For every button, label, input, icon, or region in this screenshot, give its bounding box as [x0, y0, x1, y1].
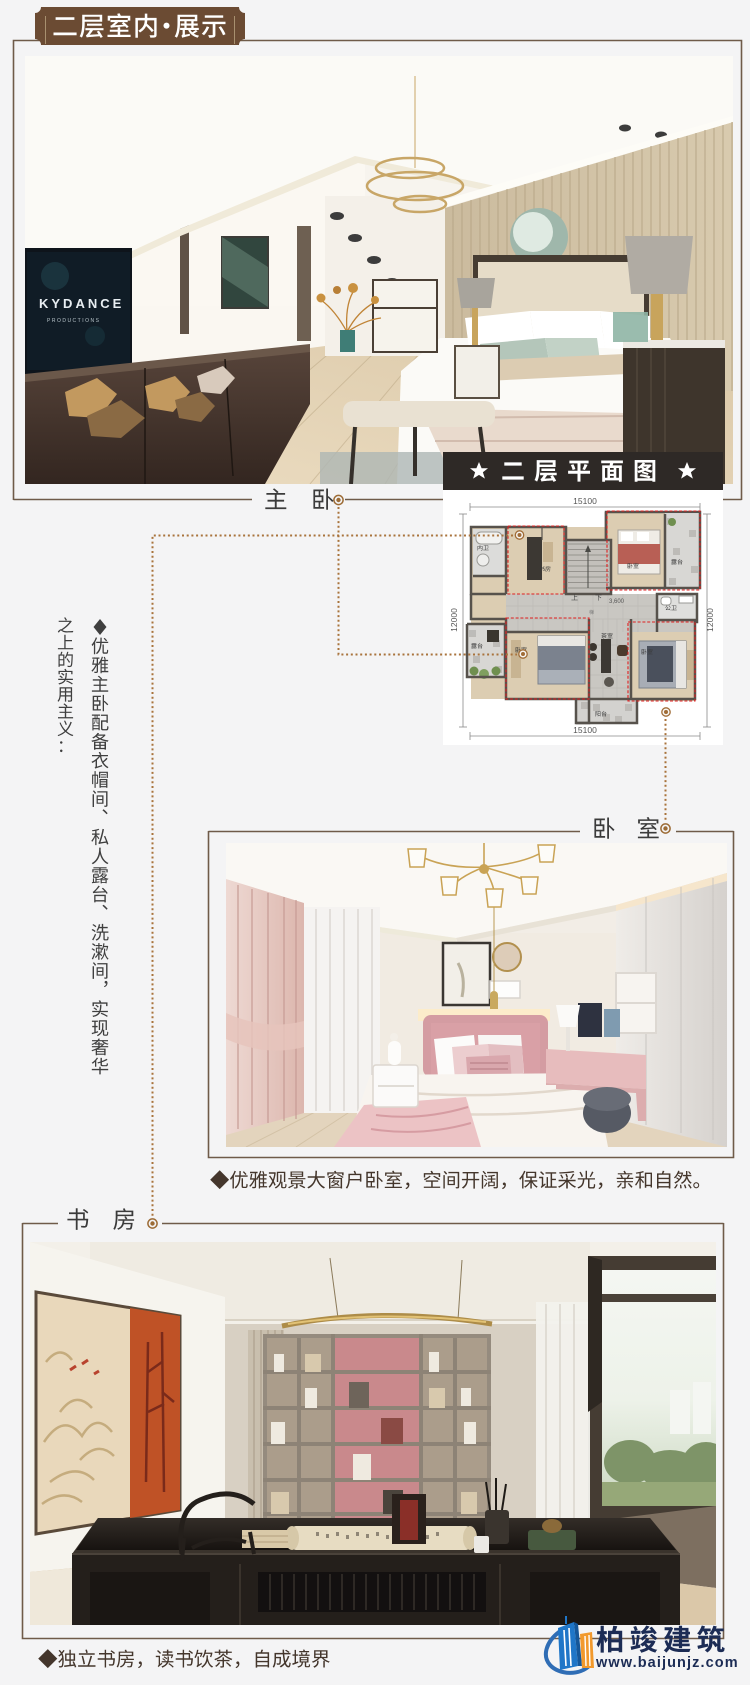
svg-text:www.baijunjz.com: www.baijunjz.com [595, 1655, 739, 1671]
svg-text:12000: 12000 [705, 608, 715, 632]
svg-text:3,600: 3,600 [609, 599, 625, 605]
svg-text:12000: 12000 [449, 608, 459, 632]
svg-text:PRODUCTIONS: PRODUCTIONS [47, 318, 100, 324]
svg-text:15100: 15100 [573, 725, 597, 735]
svg-text:15100: 15100 [573, 496, 597, 506]
svg-text:KYDANCE: KYDANCE [39, 296, 124, 311]
